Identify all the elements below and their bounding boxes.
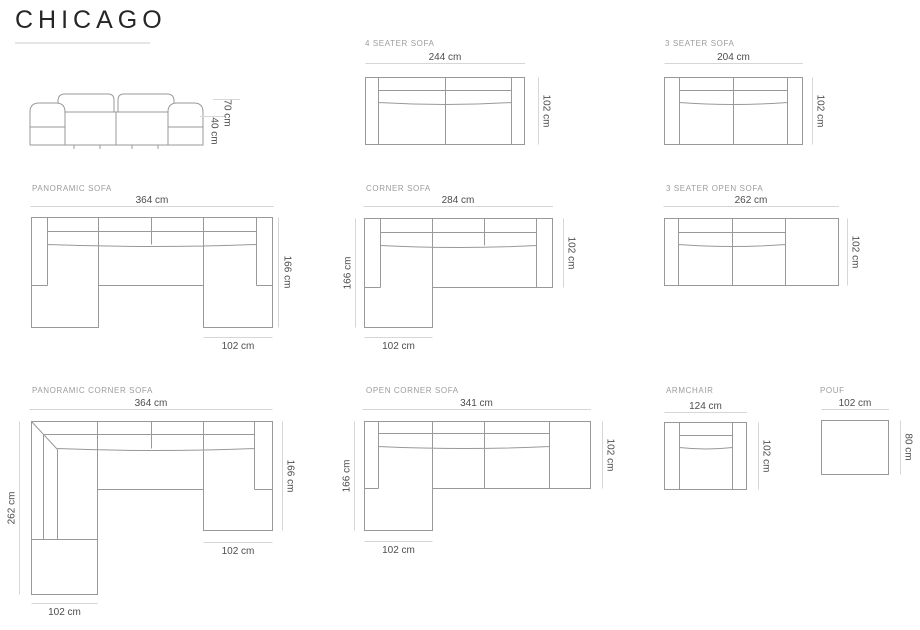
dim-panoramic-chaise-width: 102 cm (203, 341, 273, 352)
dim-four-seater-width: 244 cm (365, 52, 525, 63)
dim-pouf-depth: 80 cm (903, 433, 914, 460)
dimension-sheet: CHICAGO 70 cm 40 cm 4 SEATER SOFA 244 cm… (0, 0, 920, 630)
dim-panoramic-corner-left-depth: 262 cm (7, 492, 18, 525)
armchair-top-view (665, 413, 759, 490)
page-title: CHICAGO (15, 6, 167, 35)
dim-corner-depth: 166 cm (343, 257, 354, 290)
panoramic-corner-top-view (20, 410, 283, 604)
dim-pouf-width: 102 cm (821, 398, 889, 409)
dim-panoramic-width: 364 cm (30, 195, 274, 206)
dim-open-corner-width: 341 cm (362, 398, 591, 409)
diagram-label-armchair: ARMCHAIR (666, 386, 713, 395)
diagram-label-open-corner: OPEN CORNER SOFA (366, 386, 459, 395)
dim-open-corner-end-depth: 102 cm (605, 439, 616, 472)
dim-side-total-height: 70 cm (222, 99, 233, 126)
dim-three-seater-width: 204 cm (664, 52, 803, 63)
diagram-label-pouf: POUF (820, 386, 845, 395)
dim-panoramic-corner-width: 364 cm (29, 398, 273, 409)
diagram-label-panoramic-corner: PANORAMIC CORNER SOFA (32, 386, 153, 395)
diagram-label-three-seater: 3 SEATER SOFA (665, 39, 734, 48)
dim-armchair-depth: 102 cm (761, 440, 772, 473)
dim-four-seater-depth: 102 cm (541, 95, 552, 128)
diagram-label-corner: CORNER SOFA (366, 184, 431, 193)
diagram-label-panoramic: PANORAMIC SOFA (32, 184, 112, 193)
panoramic-top-view (31, 207, 279, 338)
four-seater-top-view (366, 64, 539, 145)
dim-panoramic-corner-bottom-chaise: 102 cm (31, 607, 98, 618)
dim-open-corner-chaise-width: 102 cm (364, 545, 433, 556)
corner-top-view (356, 207, 564, 338)
dim-corner-end-depth: 102 cm (566, 237, 577, 270)
linework-layer (0, 0, 920, 630)
diagram-label-four-seater: 4 SEATER SOFA (365, 39, 434, 48)
open-corner-top-view (355, 410, 603, 542)
dim-open-corner-depth: 166 cm (342, 460, 353, 493)
three-seater-top-view (665, 64, 813, 145)
dim-panoramic-depth: 166 cm (282, 256, 293, 289)
dim-panoramic-corner-right-depth: 166 cm (285, 460, 296, 493)
dim-three-seater-depth: 102 cm (815, 95, 826, 128)
pouf-top-view (822, 410, 901, 475)
dim-three-seater-open-depth: 102 cm (850, 236, 861, 269)
dim-three-seater-open-width: 262 cm (663, 195, 839, 206)
title-underline (15, 42, 150, 44)
dim-panoramic-corner-right-chaise: 102 cm (203, 546, 273, 557)
diagram-label-three-seater-open: 3 SEATER OPEN SOFA (666, 184, 763, 193)
dim-side-seat-height: 40 cm (209, 117, 220, 144)
dim-corner-chaise-width: 102 cm (364, 341, 433, 352)
dim-armchair-width: 124 cm (664, 401, 747, 412)
dim-corner-width: 284 cm (363, 195, 553, 206)
three-seater-open-top-view (664, 207, 848, 286)
